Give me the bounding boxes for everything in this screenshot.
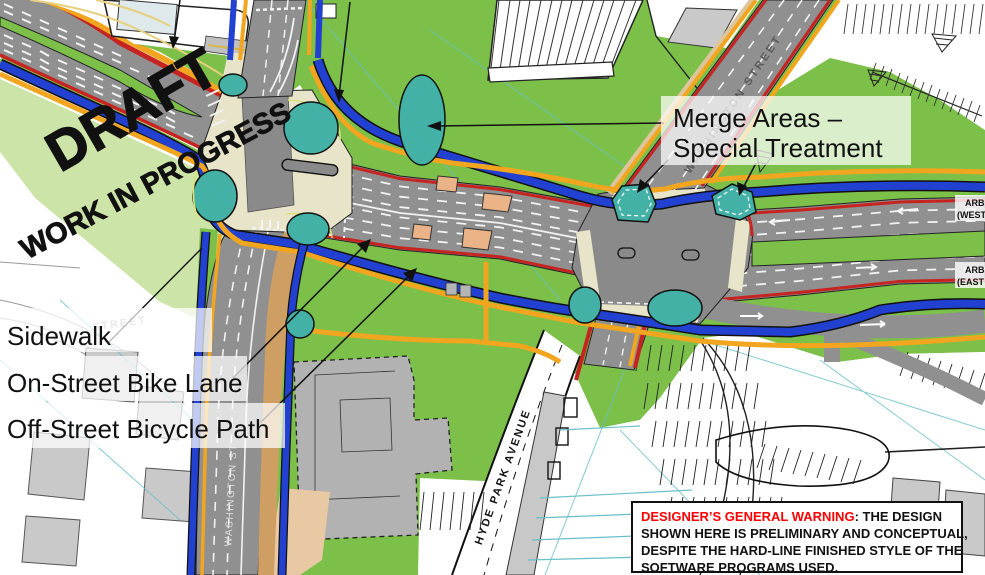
- svg-text:(EAST: (EAST: [957, 277, 985, 287]
- svg-text:SOFTWARE PROGRAMS USED.: SOFTWARE PROGRAMS USED.: [641, 560, 838, 575]
- svg-text:On-Street Bike Lane: On-Street Bike Lane: [7, 368, 243, 398]
- svg-text:Sidewalk: Sidewalk: [7, 321, 112, 351]
- svg-text:Merge Areas –: Merge Areas –: [673, 103, 843, 133]
- svg-text:Special Treatment: Special Treatment: [673, 133, 883, 163]
- svg-text:Off-Street Bicycle Path: Off-Street Bicycle Path: [7, 414, 270, 444]
- svg-text:ARB: ARB: [965, 198, 985, 208]
- svg-text:DESIGNER’S GENERAL WARNING: T: DESIGNER’S GENERAL WARNING: THE DESIGN: [641, 509, 942, 524]
- svg-text:SHOWN HERE IS PRELIMINARY AND: SHOWN HERE IS PRELIMINARY AND CONCEPTUAL…: [641, 526, 968, 541]
- svg-text:ARB: ARB: [965, 265, 985, 275]
- svg-text:DESPITE THE HARD-LINE FINISHED: DESPITE THE HARD-LINE FINISHED STYLE OF …: [641, 543, 963, 558]
- svg-text:(WEST: (WEST: [957, 210, 985, 220]
